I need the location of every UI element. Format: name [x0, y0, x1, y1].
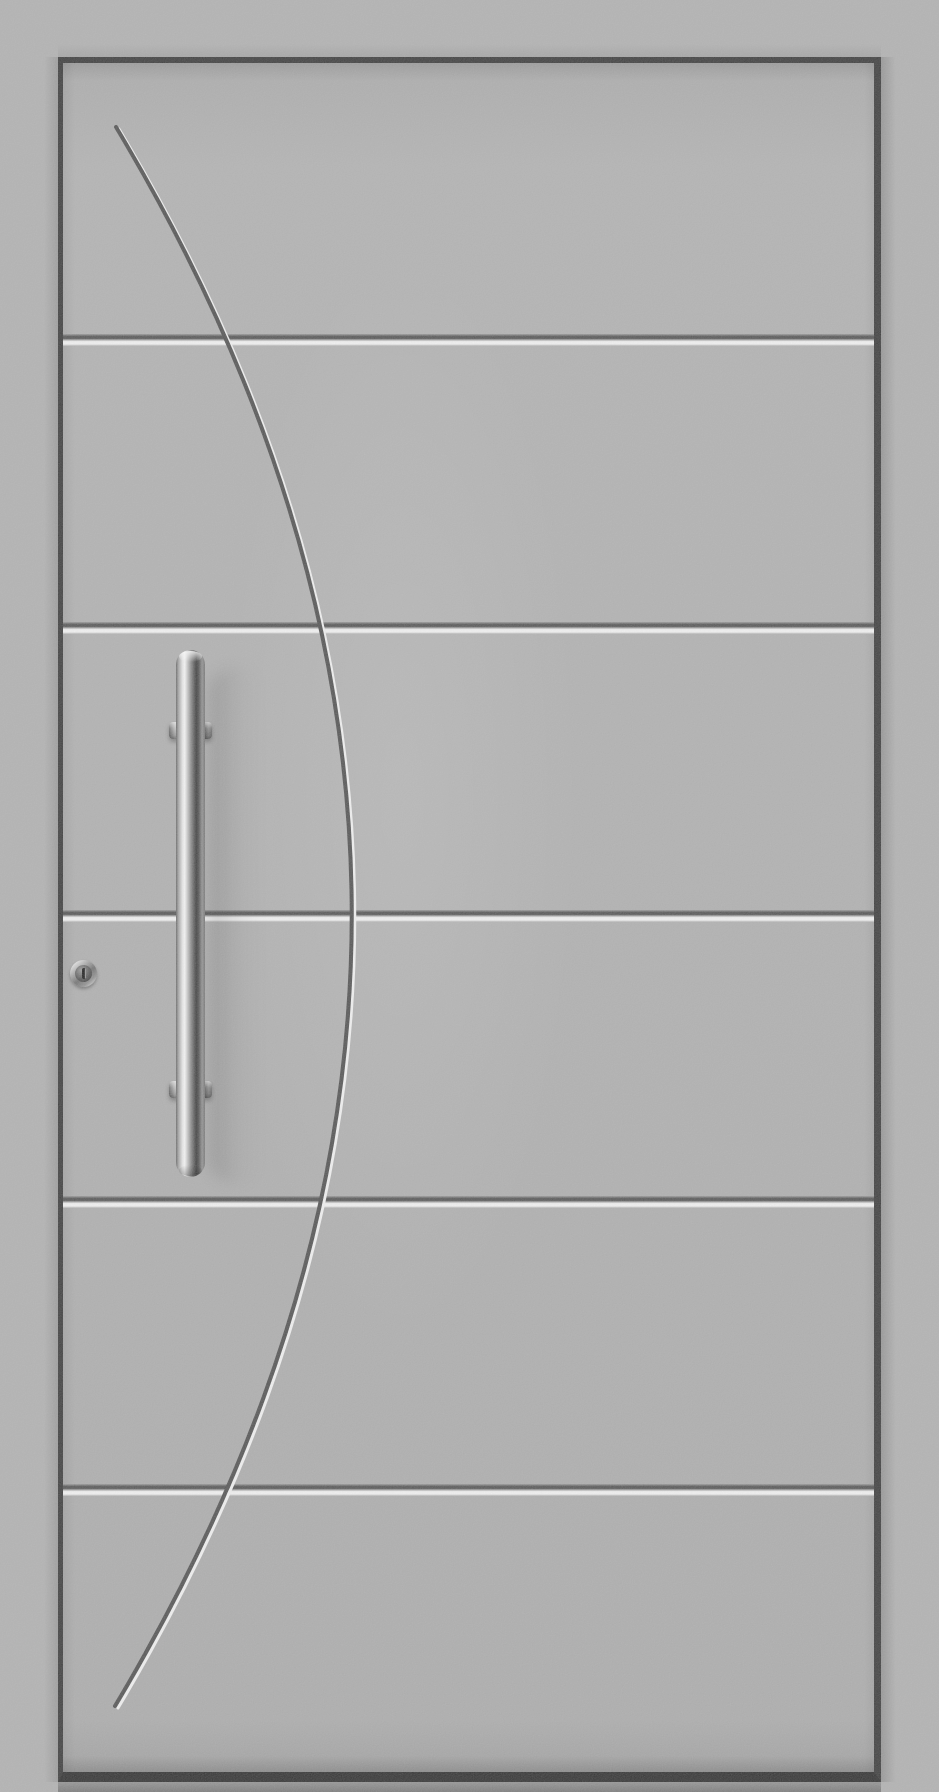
key-slot	[82, 968, 86, 979]
door-product-image	[0, 0, 939, 1792]
decorative-curve-groove	[0, 0, 939, 1792]
door-threshold	[58, 1782, 881, 1792]
lock-cylinder	[70, 960, 97, 987]
door-pull-handle	[176, 650, 205, 1177]
handle-cast-shadow	[209, 668, 261, 1183]
lock-cylinder-face	[75, 965, 92, 982]
